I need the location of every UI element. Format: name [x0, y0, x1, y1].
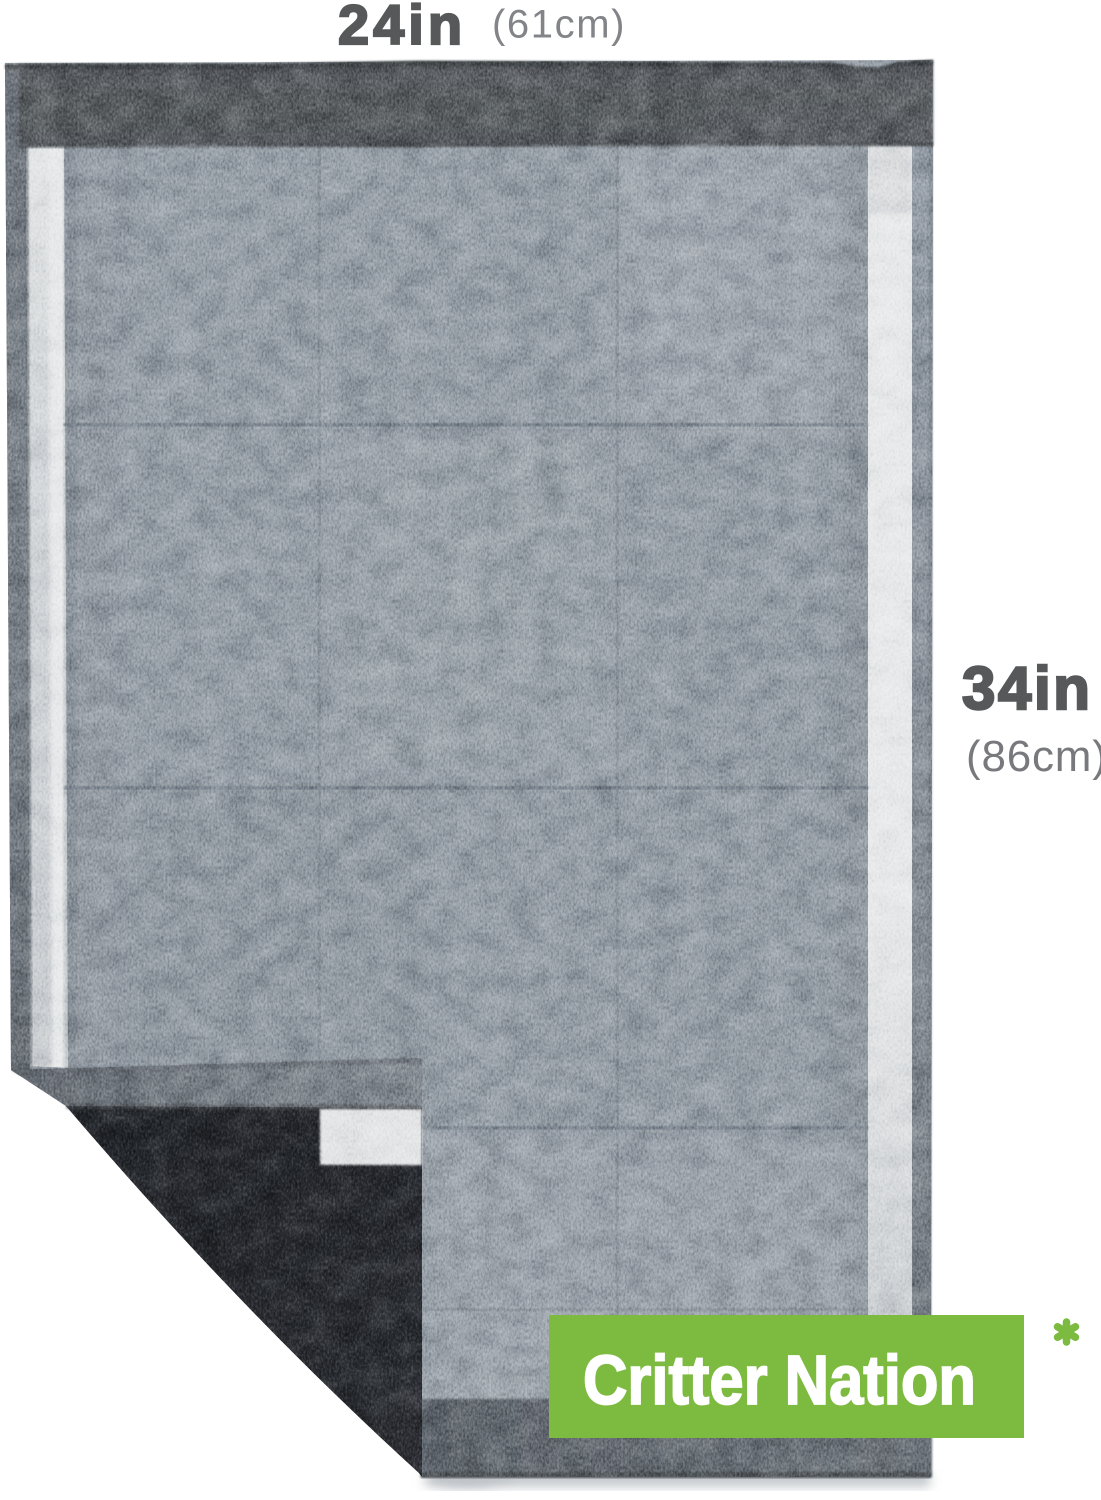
- svg-text:34in: 34in: [962, 655, 1092, 722]
- svg-text:Critter Nation: Critter Nation: [583, 1341, 976, 1419]
- svg-text:24in: 24in: [338, 0, 466, 56]
- svg-text:(86cm): (86cm): [966, 732, 1101, 781]
- svg-text:(61cm): (61cm): [492, 3, 626, 47]
